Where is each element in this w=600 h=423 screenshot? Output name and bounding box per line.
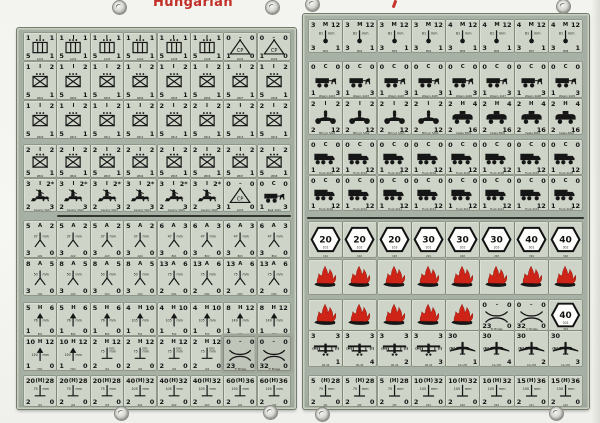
at-gun-counter: 13A62075mmD01 xyxy=(158,259,190,295)
motorcycle-counter: 2I2212Mtrcycl5A02 xyxy=(343,99,376,134)
howitzer-icon: 105mm xyxy=(193,308,221,331)
unit-id: I02 xyxy=(133,368,147,371)
infantry-counter: 1I2511B04 xyxy=(124,62,156,99)
at-gun-counter: 6A33047mmB02 xyxy=(191,221,223,257)
unit-id: Truck4C14 xyxy=(490,208,504,211)
unit-id: 101 xyxy=(319,255,333,258)
unit-id: E02 xyxy=(67,333,81,336)
unit-id: M01 xyxy=(319,50,333,53)
infantry-icon xyxy=(260,67,288,95)
svg-text:mm: mm xyxy=(276,387,282,391)
unit-id: Wagon4A08 xyxy=(524,95,538,98)
field-gun-icon: 150mm xyxy=(551,381,580,402)
unit-id: CR-42 xyxy=(421,364,435,367)
unit-id: 1B06 xyxy=(200,97,214,100)
counter-row: 2010110120102102201031033020120130202202… xyxy=(309,222,583,258)
unit-id: Truck4C10 xyxy=(353,208,367,211)
counter-row: 3M123181mmM013M123181mmM023M123181mmM033… xyxy=(309,20,583,53)
truck-icon xyxy=(414,145,443,170)
at-gun-counter: 5A23037mmA03 xyxy=(91,221,123,257)
unit-id: 2A03 xyxy=(234,209,248,212)
howitzer-counter: 5H61076mmE02 xyxy=(57,303,89,335)
burning-wreck-icon xyxy=(413,261,444,293)
counter-row: 10H1210150mmH0110H1210150mmH022H122075mm… xyxy=(24,337,291,371)
motorcycle-icon xyxy=(311,104,340,130)
infantry-counter: 2I2512B02 xyxy=(57,145,89,177)
bomber-icon xyxy=(551,336,580,362)
unit-id: C01 xyxy=(33,293,47,296)
artillery-counter: 20(H)282075mmJ01 xyxy=(24,376,56,406)
svg-text:30: 30 xyxy=(422,236,435,246)
unit-id: 2B06 xyxy=(200,175,214,178)
truck-counter: 0C0112Truck4C12 xyxy=(412,176,445,210)
truck-icon xyxy=(345,145,374,170)
wagon-icon xyxy=(380,67,409,93)
machinegun-icon xyxy=(59,38,87,56)
armored-car-counter: 2H4216Csaba5B03 xyxy=(515,99,548,134)
burning-wreck-marker xyxy=(446,300,479,330)
burning-wreck-icon xyxy=(413,301,444,329)
unit-id: H01 xyxy=(33,368,47,371)
unit-id: Mtrcycl5A04 xyxy=(421,132,435,135)
cavalry-icon xyxy=(193,184,221,207)
infantry-counter: 2I2512B07 xyxy=(224,145,256,177)
field-gun-icon: 150mm xyxy=(260,381,288,402)
unit-id: M07 xyxy=(524,50,538,53)
burning-wreck-icon xyxy=(344,261,375,293)
machinegun-counter: 1I1511A05 xyxy=(158,33,190,60)
at-gun-icon: 50mm xyxy=(126,264,154,291)
wagon-icon xyxy=(260,184,288,207)
bomber-aircraft-counter: 304(H)CA-135 xyxy=(480,331,513,366)
svg-text:mm: mm xyxy=(42,319,48,323)
mortar-icon: 81mm xyxy=(414,25,443,48)
unit-id: Regt4A01 xyxy=(267,209,281,212)
field-gun-icon: 105mm xyxy=(414,381,443,402)
unit-id: G01 xyxy=(234,333,248,336)
unit-id: 2B04 xyxy=(133,175,147,178)
svg-text:81: 81 xyxy=(387,31,391,35)
truck-counter: 0C0112Truck4C02 xyxy=(343,140,376,174)
cavalry-icon xyxy=(26,184,54,207)
svg-text:mm: mm xyxy=(109,387,115,391)
motorcycle-icon xyxy=(380,104,409,130)
machinegun-counter: 1I1511A04 xyxy=(124,33,156,60)
artillery-counter: 5(H)282075mmJ03 xyxy=(378,376,411,406)
infantry-icon xyxy=(193,150,221,173)
svg-text:mm: mm xyxy=(568,387,575,391)
svg-text:76: 76 xyxy=(100,319,104,323)
hex-marker-icon: 30202 xyxy=(447,223,478,256)
cavalry-counter: 3I2*23Cavalry3A05 xyxy=(158,179,190,211)
truck-icon xyxy=(551,145,580,170)
svg-text:75: 75 xyxy=(200,273,204,277)
unit-id: C03 xyxy=(100,293,114,296)
at-gun-icon: 47mm xyxy=(193,226,221,253)
unit-id: 'P' Bridge xyxy=(234,368,248,371)
unit-id: 2B08 xyxy=(267,175,281,178)
hex-marker-icon: 40301 xyxy=(516,223,547,256)
fighter-aircraft-counter: 331(H)(I)CR-42 xyxy=(309,331,342,366)
machinegun-icon xyxy=(26,38,54,56)
field-gun-icon: 105mm xyxy=(160,381,188,402)
infantry-icon xyxy=(193,106,221,134)
artillery-counter: 40(H)3220105mmK01 xyxy=(124,376,156,406)
wagon-icon xyxy=(482,67,511,93)
unit-id: J02 xyxy=(353,404,367,407)
rivet-icon xyxy=(115,407,128,420)
svg-text:37: 37 xyxy=(67,235,71,239)
burning-wreck-icon xyxy=(344,301,375,329)
mortar-icon: 81mm xyxy=(380,25,409,48)
unit-id: Cavalry3A02 xyxy=(67,209,81,212)
truck-icon xyxy=(482,181,511,206)
field-gun-icon: 150mm xyxy=(517,381,546,402)
unit-id: Wagon4A07 xyxy=(490,95,504,98)
mountain-gun-counter: 2H122075mmDR2I01 xyxy=(91,337,123,370)
hex-number-marker: 30201201 xyxy=(412,222,445,257)
svg-text:105: 105 xyxy=(165,319,171,323)
wagon-counter: 0C013Wagon4A05 xyxy=(412,62,445,97)
unit-id: Truck4C12 xyxy=(421,208,435,211)
counter-row: 0C0112Truck4C010C0112Truck4C020C0112Truc… xyxy=(309,140,583,175)
unit-id: K03 xyxy=(490,404,504,407)
svg-text:DR2: DR2 xyxy=(109,346,115,350)
command-post-counter: 0–010CP2A03 xyxy=(224,179,256,211)
svg-text:303: 303 xyxy=(563,321,569,325)
wagon-counter: 0C013Wagon4A04 xyxy=(378,62,411,97)
infantry-icon xyxy=(260,150,288,173)
svg-text:76: 76 xyxy=(34,319,38,323)
unit-id: Truck4C16 xyxy=(559,208,573,211)
truck-counter: 0C0112Truck4C15 xyxy=(515,176,548,210)
svg-text:mm: mm xyxy=(276,273,282,277)
unit-id: Truck4C11 xyxy=(387,208,401,211)
howitzer-counter: 4H1010105mmF02 xyxy=(158,303,190,335)
rivet-icon xyxy=(550,407,563,420)
burning-wreck-icon xyxy=(447,261,478,293)
svg-text:75: 75 xyxy=(200,349,204,353)
unit-id: 1B09 xyxy=(33,136,47,139)
infantry-icon xyxy=(93,150,121,173)
unit-id: E03 xyxy=(100,333,114,336)
counter-row: 1I2511B011I2511B021I2511B031I2511B041I25… xyxy=(24,62,291,100)
unit-id: L02 xyxy=(559,404,573,407)
unit-id: 1B08 xyxy=(267,97,281,100)
svg-text:75: 75 xyxy=(319,387,323,391)
machinegun-icon xyxy=(126,38,154,56)
unit-id: F02 xyxy=(167,333,181,336)
section-divider xyxy=(307,217,584,219)
field-gun-icon: 105mm xyxy=(482,381,511,402)
svg-text:mm: mm xyxy=(42,353,48,357)
mortar-counter: 4M123181mmM07 xyxy=(515,20,548,52)
svg-text:301: 301 xyxy=(528,246,534,250)
infantry-counter: 2I2511B15 xyxy=(224,101,256,138)
svg-text:20: 20 xyxy=(319,236,332,246)
hex-number-marker: 40301301 xyxy=(515,222,548,257)
wagon-icon xyxy=(448,67,477,93)
at-gun-counter: 6A33047mmB01 xyxy=(158,221,190,257)
unit-id: Truck4C03 xyxy=(387,172,401,175)
cavalry-counter: 3I2*23Cavalry3A01 xyxy=(24,179,56,211)
at-gun-counter: 5A23037mmA04 xyxy=(124,221,156,257)
unit-id: B02 xyxy=(200,255,214,258)
unit-id: Cavalry3A01 xyxy=(33,209,47,212)
mortar-counter: 4M123181mmM08 xyxy=(549,20,582,52)
unit-id: Mtrcycl5A02 xyxy=(353,132,367,135)
counter-row: 3I2*23Cavalry3A013I2*23Cavalry3A023I2*23… xyxy=(24,179,291,212)
svg-text:150: 150 xyxy=(31,353,37,357)
infantry-counter: 1I2511B12 xyxy=(124,101,156,138)
svg-text:75: 75 xyxy=(34,387,38,391)
counter-row: 0C013Wagon4A020C013Wagon4A030C013Wagon4A… xyxy=(309,62,583,98)
unit-id: Wagon4A04 xyxy=(387,95,401,98)
infantry-icon xyxy=(193,67,221,95)
hex-marker-icon: 40302 xyxy=(550,223,581,256)
artillery-counter: 5(H)282075mmJ02 xyxy=(343,376,376,406)
truck-icon xyxy=(380,145,409,170)
machinegun-counter: 1I1511A03 xyxy=(91,33,123,60)
svg-text:mm: mm xyxy=(534,31,541,35)
unit-id: CR-42 xyxy=(319,364,333,367)
at-gun-counter: 8A53050mmC04 xyxy=(124,259,156,295)
armored-car-icon xyxy=(551,104,580,130)
svg-text:mm: mm xyxy=(143,273,149,277)
howitzer-counter: 5H61076mmE01 xyxy=(24,303,56,335)
svg-text:37: 37 xyxy=(34,235,38,239)
unit-id: M06 xyxy=(490,50,504,53)
svg-text:CP: CP xyxy=(270,48,276,54)
svg-text:47: 47 xyxy=(267,235,271,239)
svg-text:CP: CP xyxy=(237,48,243,54)
burning-wreck-icon xyxy=(379,261,410,293)
howitzer-icon: 105mm xyxy=(126,308,154,331)
svg-text:76: 76 xyxy=(67,319,71,323)
svg-text:mm: mm xyxy=(209,235,215,239)
unit-id: Cavalry3A04 xyxy=(133,209,147,212)
svg-text:mm: mm xyxy=(465,387,472,391)
artillery-counter: 15(H)3620150mmL02 xyxy=(549,376,582,406)
infantry-counter: 1I2511B06 xyxy=(191,62,223,99)
unit-id: D01 xyxy=(167,293,181,296)
unit-id: 1B13 xyxy=(167,136,181,139)
mortar-icon: 81mm xyxy=(517,25,546,48)
infantry-icon xyxy=(26,67,54,95)
wagon-icon xyxy=(517,67,546,93)
burning-wreck-marker xyxy=(549,260,582,294)
truck-counter: 0C0112Truck4C13 xyxy=(446,176,479,210)
svg-text:37: 37 xyxy=(134,235,138,239)
svg-text:81: 81 xyxy=(456,31,460,35)
svg-text:47: 47 xyxy=(200,235,204,239)
unit-id: 102 xyxy=(353,255,367,258)
unit-id: Truck4C02 xyxy=(353,172,367,175)
howitzer-icon: 76mm xyxy=(93,308,121,331)
unit-id: J01 xyxy=(33,404,47,407)
unit-id: Mtrcycl5A03 xyxy=(387,132,401,135)
infantry-counter: 1I2511B03 xyxy=(91,62,123,99)
unit-id: M03 xyxy=(387,50,401,53)
infantry-counter: 2I2511B16 xyxy=(258,101,290,138)
infantry-icon xyxy=(226,106,254,134)
infantry-icon xyxy=(226,150,254,173)
svg-text:75: 75 xyxy=(234,273,238,277)
at-gun-counter: 8A53050mmC03 xyxy=(91,259,123,295)
wagon-counter: 0C013Wagon4A07 xyxy=(480,62,513,97)
howitzer-icon: 150mm xyxy=(59,342,87,366)
svg-text:mm: mm xyxy=(109,273,115,277)
artillery-counter: 10(H)3220105mmK02 xyxy=(446,376,479,406)
svg-text:mm: mm xyxy=(243,319,249,323)
unit-id: Csaba5B03 xyxy=(524,132,538,135)
infantry-icon xyxy=(226,67,254,95)
unit-id: 1B14 xyxy=(200,136,214,139)
burning-wreck-marker xyxy=(309,300,342,330)
burning-wreck-marker xyxy=(343,260,376,294)
at-gun-counter: 6A33047mmB04 xyxy=(258,221,290,257)
cavalry-icon xyxy=(126,184,154,207)
svg-text:105: 105 xyxy=(132,319,138,323)
svg-text:mm: mm xyxy=(499,31,506,35)
at-gun-icon: 75mm xyxy=(226,264,254,291)
wagon-counter: 0C013Wagon4A03 xyxy=(343,62,376,97)
bomber-aircraft-counter: 301(H)CA-135 xyxy=(446,331,479,366)
hex-number-marker: 20103103 xyxy=(378,222,411,257)
motorcycle-icon xyxy=(414,104,443,130)
machinegun-counter: 1I1511A06 xyxy=(191,33,223,60)
at-gun-counter: 8A53050mmC01 xyxy=(24,259,56,295)
burning-wreck-marker xyxy=(446,260,479,294)
svg-text:149: 149 xyxy=(232,319,238,323)
cavalry-counter: 3I2*23Cavalry3A03 xyxy=(91,179,123,211)
unit-id: M04 xyxy=(421,50,435,53)
unit-id: 201 xyxy=(421,255,435,258)
artillery-counter: 40(H)3220105mmK02 xyxy=(158,376,190,406)
unit-id: 2A02 xyxy=(267,58,281,61)
svg-text:150: 150 xyxy=(522,387,528,391)
counter-row: 1I1511A011I1511A021I1511A031I1511A041I15… xyxy=(24,33,291,61)
counter-row: 331(H)(I)CR-42334(H)(I)CR-42332(H)(I)CR-… xyxy=(309,331,583,367)
svg-text:mm: mm xyxy=(76,387,82,391)
at-gun-icon: 50mm xyxy=(59,264,87,291)
rivet-icon xyxy=(306,0,319,11)
bomber-icon xyxy=(482,336,511,362)
unit-id: Truck4C07 xyxy=(524,172,538,175)
counter-row: 8A53050mmC018A53050mmC028A53050mmC038A53… xyxy=(24,259,291,296)
at-gun-icon: 47mm xyxy=(260,226,288,253)
unit-id: Truck4C06 xyxy=(490,172,504,175)
howitzer-counter: 5H61076mmE03 xyxy=(91,303,123,335)
unit-id: 1B02 xyxy=(67,97,81,100)
at-gun-counter: 13A62075mmD02 xyxy=(191,259,223,295)
bomber-aircraft-counter: 303(H)CA-135 xyxy=(549,331,582,366)
mountain-gun-icon: 75mmDR2 xyxy=(160,342,188,366)
svg-text:75: 75 xyxy=(67,387,71,391)
svg-text:50: 50 xyxy=(134,273,138,277)
truck-counter: 0C0112Truck4C01 xyxy=(309,140,342,174)
svg-text:mm: mm xyxy=(209,387,215,391)
cavalry-icon xyxy=(59,184,87,207)
cavalry-counter: 3I2*23Cavalry3A06 xyxy=(191,179,223,211)
infantry-counter: 1I2511B10 xyxy=(57,101,89,138)
infantry-icon xyxy=(126,67,154,95)
unit-id: 2B03 xyxy=(100,175,114,178)
unit-id: 202 xyxy=(456,255,470,258)
infantry-counter: 1I2511B11 xyxy=(91,101,123,138)
infantry-counter: 2I2511B13 xyxy=(158,101,190,138)
machinegun-icon xyxy=(160,38,188,56)
at-gun-icon: 50mm xyxy=(93,264,121,291)
unit-id: M05 xyxy=(456,50,470,53)
svg-text:302: 302 xyxy=(563,246,569,250)
svg-text:mm: mm xyxy=(176,387,182,391)
svg-text:75: 75 xyxy=(100,387,104,391)
hex-number-marker: 20102102 xyxy=(343,222,376,257)
hex-marker-icon: 20101 xyxy=(310,223,341,256)
biplane-icon xyxy=(345,336,374,362)
svg-text:mm: mm xyxy=(109,235,115,239)
field-gun-icon: 75mm xyxy=(345,381,374,402)
truck-icon xyxy=(380,181,409,206)
unit-id: 103 xyxy=(387,255,401,258)
at-gun-icon: 37mm xyxy=(126,226,154,253)
svg-text:mm: mm xyxy=(568,31,575,35)
cavalry-icon xyxy=(93,184,121,207)
svg-text:47: 47 xyxy=(167,235,171,239)
hex-number-marker: 40303303 xyxy=(549,300,582,330)
artillery-counter: 40(H)3220105mmK03 xyxy=(191,376,223,406)
unit-id: Wagon4A05 xyxy=(421,95,435,98)
command-post-counter: 0–010CP2A02 xyxy=(258,33,290,60)
svg-text:105: 105 xyxy=(454,387,460,391)
at-gun-counter: 6A33047mmB03 xyxy=(224,221,256,257)
svg-text:mm: mm xyxy=(243,273,249,277)
artillery-counter: 20(H)282075mmJ02 xyxy=(57,376,89,406)
wagon-icon xyxy=(551,67,580,93)
infantry-counter: 2I2512B04 xyxy=(124,145,156,177)
at-gun-icon: 47mm xyxy=(226,226,254,253)
unit-id: F03 xyxy=(200,333,214,336)
field-gun-icon: 75mm xyxy=(311,381,340,402)
field-gun-icon: 75mm xyxy=(26,381,54,402)
svg-text:mm: mm xyxy=(42,235,48,239)
unit-id: Wagon4A02 xyxy=(319,95,333,98)
unit-id: CA-135 xyxy=(559,364,573,367)
unit-id: J02 xyxy=(67,404,81,407)
svg-text:mm: mm xyxy=(109,319,115,323)
counter-row: 2I2212Mtrcycl5A012I2212Mtrcycl5A022I2212… xyxy=(309,99,583,135)
field-gun-icon: 75mm xyxy=(93,381,121,402)
unit-id: E01 xyxy=(33,333,47,336)
unit-id: Mtrcycl5A01 xyxy=(319,132,333,135)
svg-text:81: 81 xyxy=(525,31,529,35)
at-gun-icon: 47mm xyxy=(160,226,188,253)
burning-wreck-icon xyxy=(481,261,512,293)
svg-text:103: 103 xyxy=(391,246,397,250)
svg-text:mm: mm xyxy=(209,273,215,277)
bomber-icon xyxy=(517,336,546,362)
armored-car-counter: 2H4216Csaba5B04 xyxy=(549,99,582,134)
unit-id: L01 xyxy=(524,404,538,407)
unit-id: 1A02 xyxy=(67,58,81,61)
unit-id: 1A03 xyxy=(100,58,114,61)
unit-id: K01 xyxy=(133,404,147,407)
unit-id: Cavalry3A03 xyxy=(100,209,114,212)
wagon-counter: 0C013Wagon4A06 xyxy=(446,62,479,97)
counter-row: 2I2512B012I2512B022I2512B032I2512B042I25… xyxy=(24,145,291,178)
svg-text:CP: CP xyxy=(237,197,243,203)
